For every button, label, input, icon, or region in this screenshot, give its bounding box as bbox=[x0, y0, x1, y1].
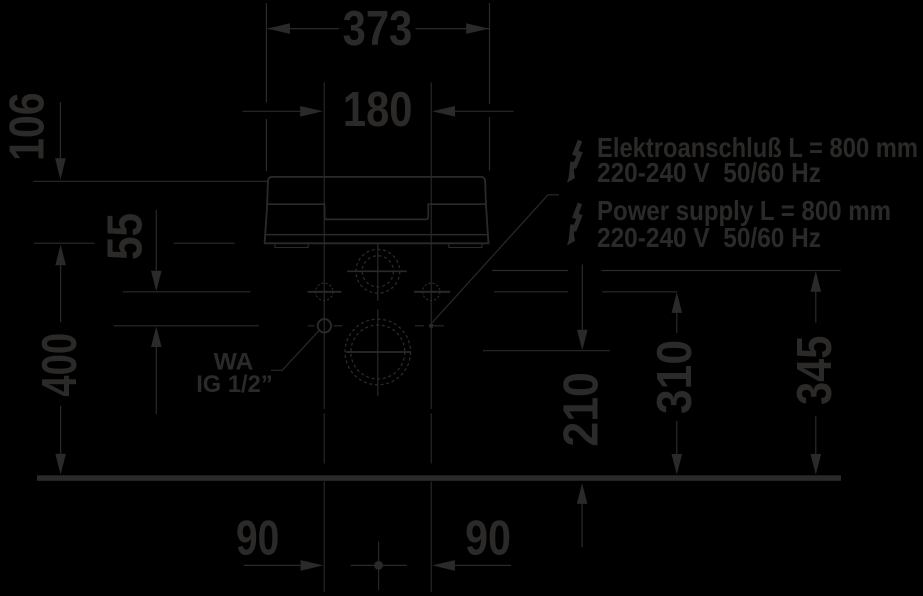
svg-text:90: 90 bbox=[465, 511, 511, 565]
svg-text:345: 345 bbox=[788, 336, 842, 405]
svg-text:220-240 V 50/60 Hz: 220-240 V 50/60 Hz bbox=[597, 157, 821, 188]
svg-text:90: 90 bbox=[236, 511, 279, 565]
svg-text:180: 180 bbox=[343, 83, 413, 137]
svg-text:210: 210 bbox=[554, 372, 608, 447]
svg-text:220-240 V 50/60 Hz: 220-240 V 50/60 Hz bbox=[597, 222, 821, 253]
svg-text:373: 373 bbox=[343, 2, 413, 56]
svg-text:IG 1/2”: IG 1/2” bbox=[196, 371, 273, 398]
svg-text:55: 55 bbox=[99, 213, 153, 260]
svg-text:400: 400 bbox=[33, 333, 87, 397]
svg-text:310: 310 bbox=[648, 340, 702, 414]
svg-text:106: 106 bbox=[1, 92, 55, 161]
